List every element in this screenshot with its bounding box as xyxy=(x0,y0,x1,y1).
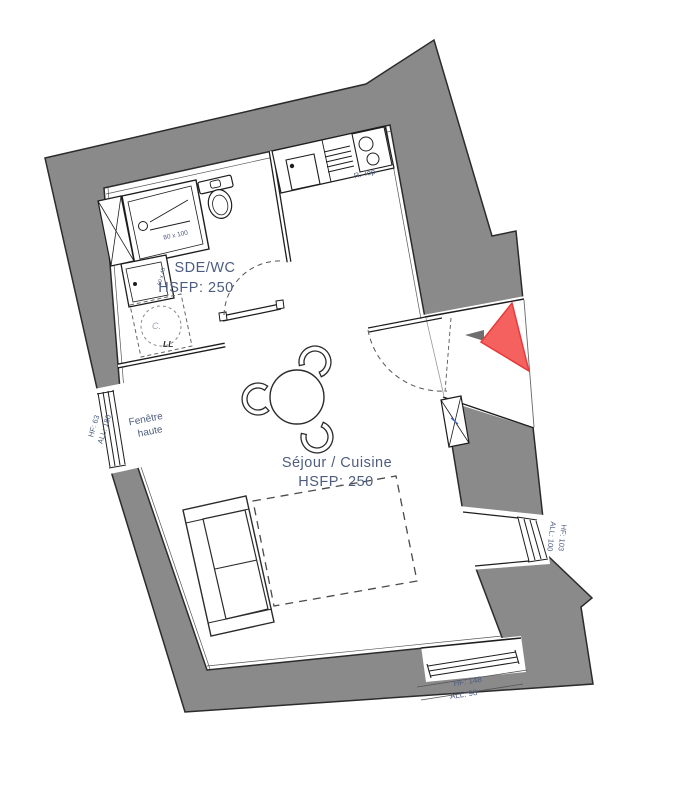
boiler-label: C. xyxy=(152,321,161,331)
washbasin-drain-icon xyxy=(133,282,137,286)
toilet xyxy=(198,175,240,222)
window-right-hf: HF: 103 xyxy=(556,524,568,552)
bath-door-end-cap xyxy=(219,312,227,321)
chair xyxy=(241,382,269,415)
washer-outline xyxy=(130,294,192,357)
floor-plan-page: Fenêtre haute HF: 63 ALL: 180 HF: 103 AL… xyxy=(0,0,689,800)
dining-table-set xyxy=(241,341,338,459)
floor-plan-svg: Fenêtre haute HF: 63 ALL: 180 HF: 103 AL… xyxy=(0,0,689,800)
living-room-name: Séjour / Cuisine xyxy=(282,455,392,471)
bathroom-name: SDE/WC xyxy=(175,260,236,276)
washing-machine: C. LL xyxy=(130,294,192,357)
round-table xyxy=(270,370,324,424)
faucet-icon xyxy=(290,164,294,168)
washer-label: LL xyxy=(163,339,173,349)
sofa xyxy=(183,496,274,636)
window-right-all: ALL: 100 xyxy=(545,521,558,552)
washer-drum xyxy=(141,306,181,346)
window-left: Fenêtre haute HF: 63 ALL: 180 xyxy=(85,383,167,474)
bath-door-end-cap xyxy=(276,300,284,309)
chair xyxy=(298,421,338,459)
living-room-hsfp: HSFP: 250 xyxy=(298,474,373,490)
room-labels: SDE/WC HSFP: 250 Séjour / Cuisine HSFP: … xyxy=(158,260,392,490)
window-right-dims: HF: 103 ALL: 100 xyxy=(545,521,569,553)
bath-door-panel-b xyxy=(223,309,281,321)
bathroom-hsfp: HSFP: 250 xyxy=(158,280,233,296)
fenetre-haute-label-2: haute xyxy=(137,424,164,440)
shower: 80 x 100 xyxy=(122,180,209,265)
sofa-bed-outline xyxy=(253,476,417,606)
bath-door-panel-a xyxy=(222,304,280,316)
kitchen-sink xyxy=(286,154,320,190)
